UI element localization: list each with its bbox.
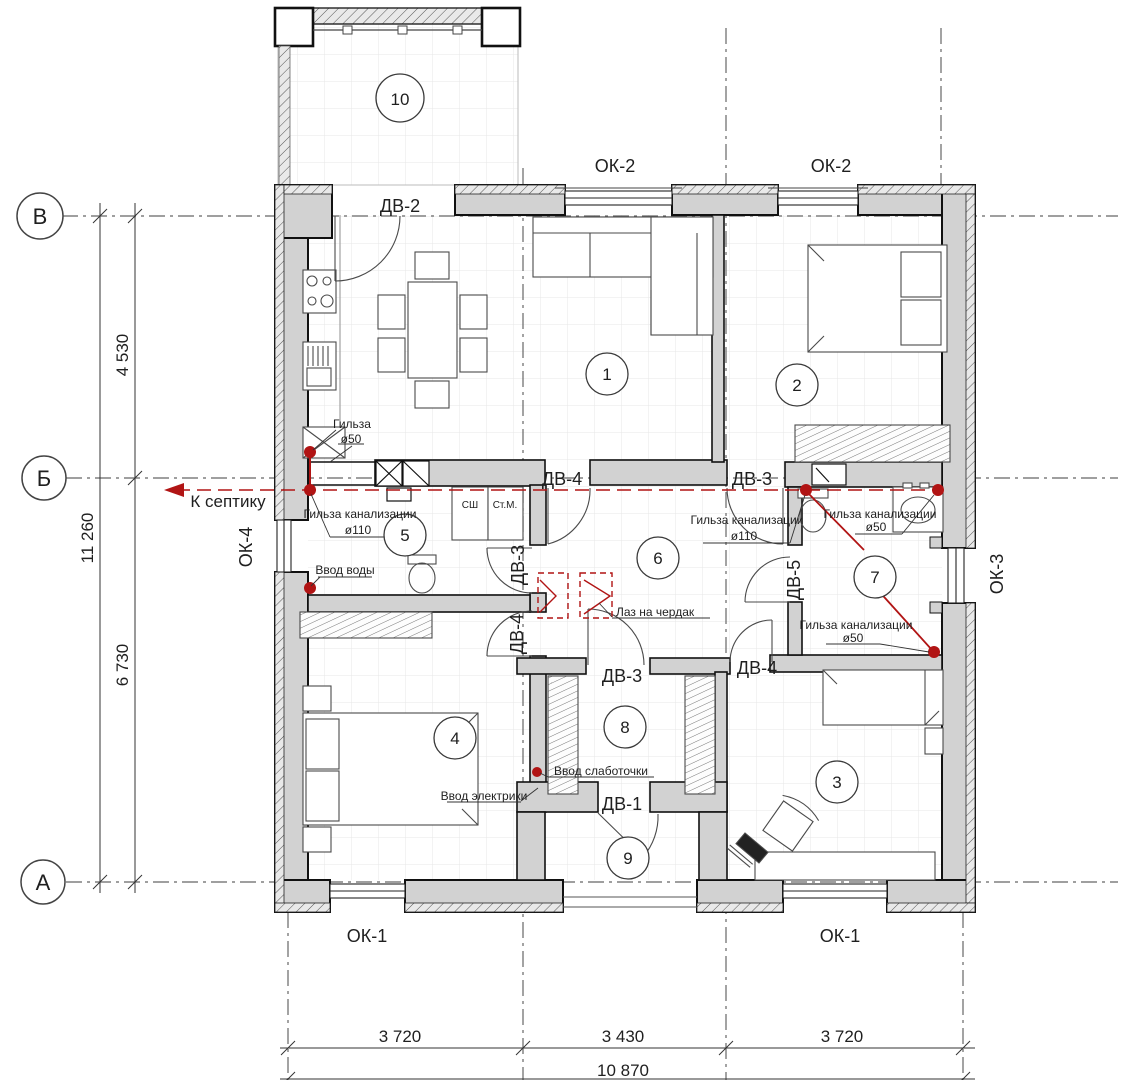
note-sewer-hall-d110: ø110 [731,529,758,543]
note-sleeve-d50: ø50 [341,432,362,446]
window-label-ok2-left: ОК-2 [595,156,636,176]
note-sewer-bath-bottom: Гильза канализации [800,618,913,632]
room-number-3: 3 [832,773,841,792]
note-attic-hatch: Лаз на чердак [616,605,695,619]
dim-3430-center: 3 430 [602,1027,645,1046]
closet-room8-right [685,676,715,794]
door-label-dv4-room3: ДВ-4 [737,658,777,678]
room-number-7: 7 [870,568,879,587]
label-drying-cabinet: СШ [462,500,478,511]
note-sewer-bath-top: Гильза канализации [824,507,937,521]
door-label-dv5-bathroom: ДВ-5 [784,560,804,600]
door-label-dv2: ДВ-2 [380,196,420,216]
wardrobe-room2 [795,425,950,462]
note-electric-inlet: Ввод электрики [441,789,528,803]
note-lowcurrent-inlet: Ввод слаботочки [554,764,648,778]
room-number-5: 5 [400,526,409,545]
bed-room2 [808,245,947,352]
door-label-dv3-hall-bedroom2: ДВ-3 [732,469,772,489]
kitchen-cabinet [303,342,336,390]
note-sewer-left-d110: ø110 [345,523,372,537]
door-label-dv4-room4: ДВ-4 [507,614,527,654]
door-label-dv1-entrance: ДВ-1 [602,794,642,814]
room-number-9: 9 [623,849,632,868]
window-label-ok1-right: ОК-1 [820,926,861,946]
stove [303,270,336,313]
axis-label-v: В [33,204,48,229]
window-label-ok2-right: ОК-2 [811,156,852,176]
label-washing-machine: Ст.М. [493,500,518,511]
axis-label-b: Б [37,466,51,491]
porch-threshold [563,897,697,907]
dim-3720-right: 3 720 [821,1027,864,1046]
dim-3720-left: 3 720 [379,1027,422,1046]
closet-room4 [300,612,432,638]
note-sewer-left: Гильза канализации [304,507,417,521]
note-septic: К септику [190,492,266,511]
axis-label-a: А [36,870,51,895]
axis-bubbles: В Б А [17,193,66,904]
room-number-10: 10 [391,90,410,109]
window-label-ok3: ОК-3 [987,554,1007,595]
dim-4530: 4 530 [113,334,132,377]
window-label-ok1-left: ОК-1 [347,926,388,946]
dim-11260: 11 260 [78,513,97,564]
dim-10870-total: 10 870 [597,1061,649,1080]
door-label-dv3-room8: ДВ-3 [602,666,642,686]
note-sewer-hall: Гильза канализации [691,513,804,527]
floor-plan-drawing: В Б А 1 2 3 4 5 6 7 8 9 10 ДВ-2 ДВ-4 ДВ-… [0,0,1125,1080]
window-label-ok4: ОК-4 [236,527,256,568]
septic-arrow [164,483,184,497]
note-water-inlet: Ввод воды [315,563,374,577]
room-number-8: 8 [620,718,629,737]
note-sewer-bath-bottom-d50: ø50 [843,631,864,645]
room-number-1: 1 [602,365,611,384]
door-label-dv4-hall-living: ДВ-4 [542,469,582,489]
room-number-6: 6 [653,549,662,568]
dim-6730: 6 730 [113,644,132,687]
room-number-2: 2 [792,376,801,395]
note-sleeve: Гильза [333,417,371,431]
floor-plan-svg: В Б А 1 2 3 4 5 6 7 8 9 10 ДВ-2 ДВ-4 ДВ-… [0,0,1125,1080]
room-number-4: 4 [450,729,459,748]
door-label-dv3-room5: ДВ-3 [508,545,528,585]
laundry-appliances [452,487,523,540]
note-sewer-bath-top-d50: ø50 [866,520,887,534]
